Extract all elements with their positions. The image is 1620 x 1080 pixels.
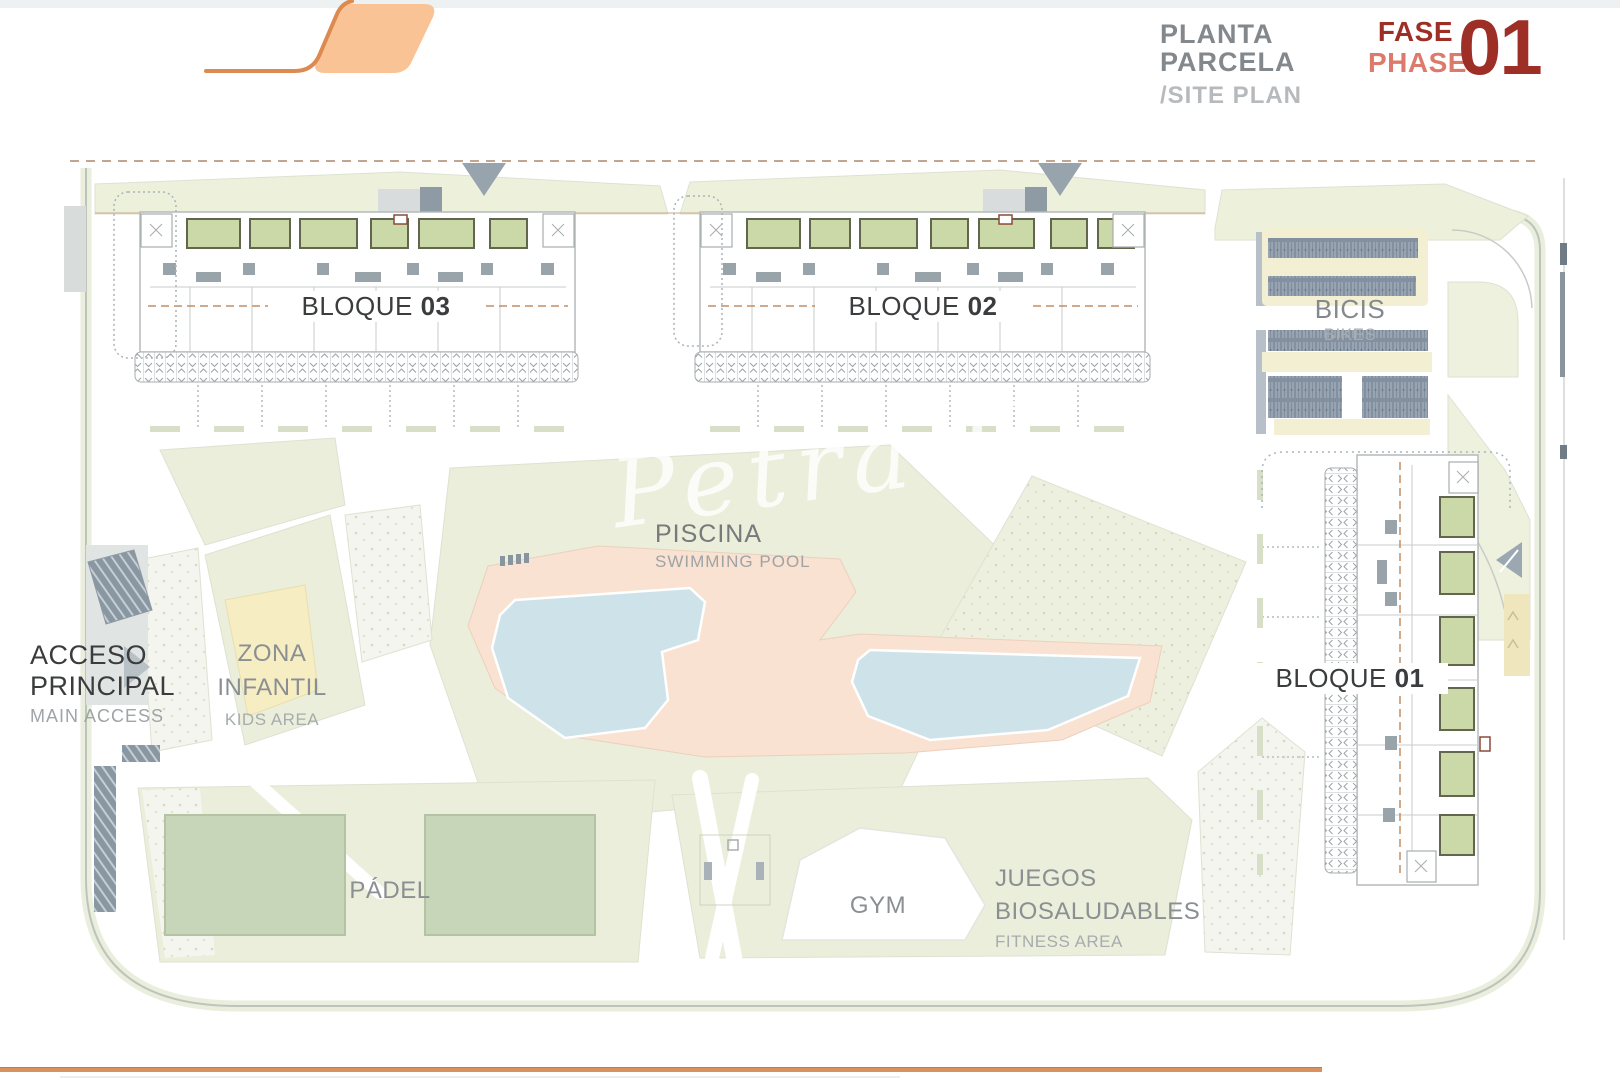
label-zona-es2: INFANTIL bbox=[192, 674, 352, 702]
label-zona-es1: ZONA bbox=[192, 640, 352, 668]
label-bicis-es: BICIS bbox=[1290, 294, 1410, 325]
bike-rack-row bbox=[1268, 276, 1416, 296]
label-bloque-01: BLOQUE 01 bbox=[1252, 663, 1448, 694]
label-zona-infantil: ZONA INFANTIL KIDS AREA bbox=[192, 640, 352, 730]
label-piscina-en: SWIMMING POOL bbox=[655, 552, 811, 572]
site-plan-page: PLANTA PARCELA /SITE PLAN FASE PHASE 01 bbox=[0, 0, 1620, 1080]
parking-hatch-small bbox=[122, 745, 160, 762]
label-juegos-es1: JUEGOS bbox=[995, 865, 1200, 893]
padel-court-right bbox=[425, 815, 595, 935]
label-juegos-en: FITNESS AREA bbox=[995, 932, 1200, 952]
label-gym: GYM bbox=[828, 892, 928, 920]
parking-hatch-strip bbox=[94, 766, 116, 912]
label-acceso-principal: ACCESO PRINCIPAL MAIN ACCESS bbox=[30, 640, 175, 727]
label-zona-en: KIDS AREA bbox=[192, 710, 352, 730]
label-acceso-es1: ACCESO bbox=[30, 640, 175, 671]
label-juegos: JUEGOS BIOSALUDABLES FITNESS AREA bbox=[995, 865, 1200, 952]
label-bloque-02: BLOQUE 02 bbox=[815, 291, 1031, 322]
padel-court-left bbox=[165, 815, 345, 935]
bike-rack-block bbox=[1268, 376, 1342, 418]
bike-rack-row bbox=[1268, 238, 1418, 258]
label-acceso-en: MAIN ACCESS bbox=[30, 706, 175, 727]
label-bicis-en: BIKES bbox=[1290, 325, 1410, 345]
footer-accent-rule bbox=[0, 1067, 1322, 1072]
label-padel: PÁDEL bbox=[335, 877, 445, 905]
footer-ghost-line bbox=[60, 1076, 900, 1078]
label-acceso-es2: PRINCIPAL bbox=[30, 671, 175, 702]
label-juegos-es2: BIOSALUDABLES bbox=[995, 898, 1200, 926]
bike-rack-block bbox=[1362, 376, 1428, 418]
label-bloque-03: BLOQUE 03 bbox=[268, 291, 484, 322]
label-bicis: BICIS BIKES bbox=[1290, 294, 1410, 345]
